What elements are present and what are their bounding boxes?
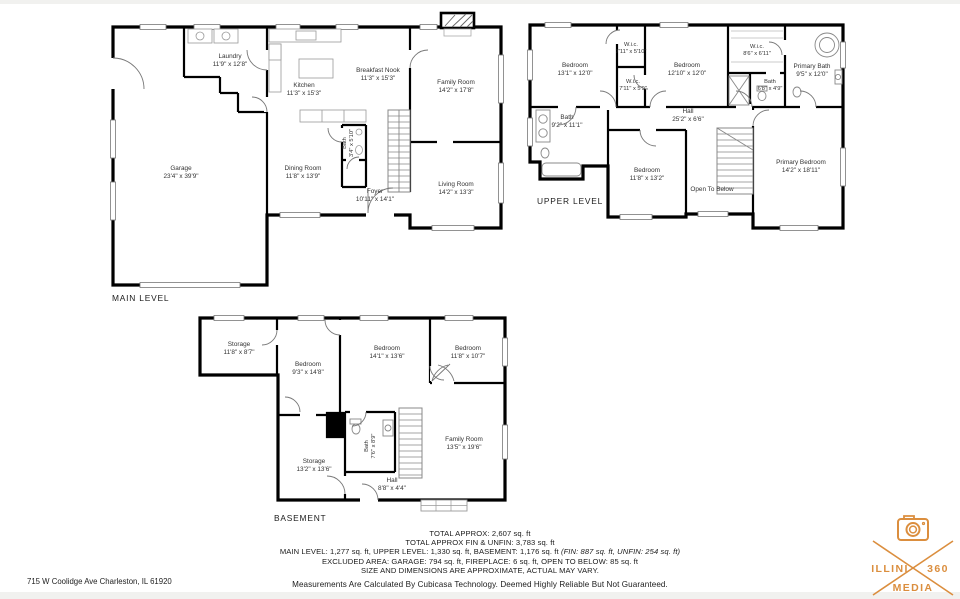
room-label-wic2: W.i.c. xyxy=(750,44,764,50)
summary-by-level-main: MAIN LEVEL: 1,277 sq. ft, UPPER LEVEL: 1… xyxy=(280,547,561,556)
logo-word-media: MEDIA xyxy=(893,582,934,594)
room-dims-bs-hall: 8'8" x 4'4" xyxy=(378,485,406,492)
room-label-foyer: Foyer xyxy=(367,188,384,195)
room-label-bs-bedroom1: Bedroom xyxy=(295,361,321,368)
upper-level-title: UPPER LEVEL xyxy=(537,196,603,206)
summary-by-level-fin-unfin: (FIN: 887 sq. ft, UNFIN: 254 sq. ft) xyxy=(561,547,680,556)
room-dims-wic3: 7'11" x 5'9" xyxy=(619,86,647,92)
room-dims-up-bedroom3: 11'8" x 13'2" xyxy=(630,175,665,182)
room-dims-storage1: 11'8" x 8'7" xyxy=(223,349,254,356)
room-label-bs-hall: Hall xyxy=(386,477,397,484)
room-dims-living-room: 14'2" x 13'3" xyxy=(438,189,473,196)
logo-word-illini: ILLINI xyxy=(871,563,909,575)
room-dims-family-room: 14'2" x 17'8" xyxy=(438,87,473,94)
room-label-bs-bath: Bath xyxy=(364,440,370,452)
room-dims-primary-bath: 9'5" x 12'0" xyxy=(796,71,828,78)
room-label-kitchen: Kitchen xyxy=(293,82,315,89)
room-label-up-bedroom3: Bedroom xyxy=(634,167,660,174)
room-dims-bs-family-room: 13'5" x 19'6" xyxy=(446,444,481,451)
basement-title: BASEMENT xyxy=(274,513,326,523)
room-label-dining-room: Dining Room xyxy=(285,165,322,172)
upper-stairs xyxy=(717,128,753,194)
summary-note: SIZE AND DIMENSIONS ARE APPROXIMATE, ACT… xyxy=(160,566,800,575)
basement-stairs xyxy=(399,408,422,478)
room-label-family-room: Family Room xyxy=(437,79,475,86)
room-label-laundry: Laundry xyxy=(218,53,242,60)
room-label-living-room: Living Room xyxy=(438,181,474,188)
summary-total: TOTAL APPROX: 2,607 sq. ft xyxy=(160,529,800,538)
room-dims-breakfast-nook: 11'3" x 15'3" xyxy=(361,75,396,82)
main-level-plan: Laundry 11'9" x 12'8" Kitchen 11'3" x 15… xyxy=(110,13,504,303)
room-dims-bs-bedroom2: 14'1" x 13'6" xyxy=(369,353,404,360)
room-label-up-hall: Hall xyxy=(682,108,693,115)
illini-360-media-logo: ILLINI 360 MEDIA xyxy=(866,511,960,599)
room-dims-kitchen: 11'3" x 15'3" xyxy=(287,90,322,97)
room-dims-wic2: 8'6" x 6'11" xyxy=(743,51,771,57)
room-label-storage1: Storage xyxy=(228,341,251,348)
room-dims-bs-bedroom3: 11'8" x 10'7" xyxy=(451,353,486,360)
room-label-up-bedroom2: Bedroom xyxy=(674,62,700,69)
chimney-block xyxy=(327,413,345,437)
room-label-up-bedroom1: Bedroom xyxy=(562,62,588,69)
room-dims-wic1: 7'11" x 5'10" xyxy=(616,49,647,55)
logo-word-360: 360 xyxy=(927,563,949,575)
room-dims-up-bedroom2: 12'10" x 12'0" xyxy=(668,70,707,77)
room-dims-dining-room: 11'8" x 13'9" xyxy=(286,173,321,180)
upper-level-plan: Bedroom 13'1" x 12'0" W.i.c. 7'11" x 5'1… xyxy=(528,23,846,231)
floorplans-drawing: Laundry 11'9" x 12'8" Kitchen 11'3" x 15… xyxy=(0,0,960,599)
room-dims-storage2: 13'2" x 13'6" xyxy=(296,466,331,473)
room-dims-garage: 23'4" x 39'9" xyxy=(163,173,198,180)
room-label-bs-family-room: Family Room xyxy=(445,436,483,443)
room-dims-up-bath: 9'2" x 11'1" xyxy=(551,122,582,129)
room-label-wic1: W.i.c. xyxy=(624,42,638,48)
room-label-up-bath: Bath xyxy=(560,114,574,121)
room-dims-up-bath-small: 6'8" x 4'9" xyxy=(758,86,783,92)
summary-by-level: MAIN LEVEL: 1,277 sq. ft, UPPER LEVEL: 1… xyxy=(160,547,800,556)
room-label-up-bath-small: Bath xyxy=(764,79,776,85)
room-label-open-to-below: Open To Below xyxy=(690,186,734,193)
main-level-title: MAIN LEVEL xyxy=(112,293,169,303)
room-dims-laundry: 11'9" x 12'8" xyxy=(213,61,248,68)
floorplan-sheet: Laundry 11'9" x 12'8" Kitchen 11'3" x 15… xyxy=(0,0,960,599)
room-label-primary-bath: Primary Bath xyxy=(794,63,831,70)
room-dims-up-hall: 25'2" x 6'6" xyxy=(672,116,704,123)
room-dims-bath-main: 3'4" x 5'10" xyxy=(349,129,355,157)
room-label-bath-main: Bath xyxy=(342,137,348,149)
room-dims-bs-bedroom1: 9'3" x 14'8" xyxy=(292,369,324,376)
room-label-bs-bedroom3: Bedroom xyxy=(455,345,481,352)
camera-icon xyxy=(898,516,928,540)
room-dims-bs-bath: 7'6" x 8'9" xyxy=(371,434,377,459)
room-label-wic3: W.i.c. xyxy=(626,79,640,85)
room-label-breakfast-nook: Breakfast Nook xyxy=(356,67,400,74)
room-dims-foyer: 10'11" x 14'1" xyxy=(356,196,394,203)
main-stairs xyxy=(388,110,410,192)
fireplace xyxy=(441,13,474,36)
summary-total-fin-unfin: TOTAL APPROX FIN & UNFIN: 3,783 sq. ft xyxy=(160,538,800,547)
basement-plan: Storage 11'8" x 8'7" Bedroom 9'3" x 14'8… xyxy=(200,316,508,524)
room-dims-up-bedroom1: 13'1" x 12'0" xyxy=(557,70,592,77)
room-label-primary-bedroom: Primary Bedroom xyxy=(776,159,826,166)
summary-excluded: EXCLUDED AREA: GARAGE: 794 sq. ft, FIREP… xyxy=(160,557,800,566)
measurement-disclaimer: Measurements Are Calculated By Cubicasa … xyxy=(160,580,800,589)
room-label-storage2: Storage xyxy=(303,458,326,465)
room-label-garage: Garage xyxy=(170,165,192,172)
property-address: 715 W Coolidge Ave Charleston, IL 61920 xyxy=(27,577,172,586)
area-summary: TOTAL APPROX: 2,607 sq. ft TOTAL APPROX … xyxy=(160,529,800,589)
room-label-bs-bedroom2: Bedroom xyxy=(374,345,400,352)
room-dims-primary-bedroom: 14'2" x 18'11" xyxy=(782,167,820,174)
